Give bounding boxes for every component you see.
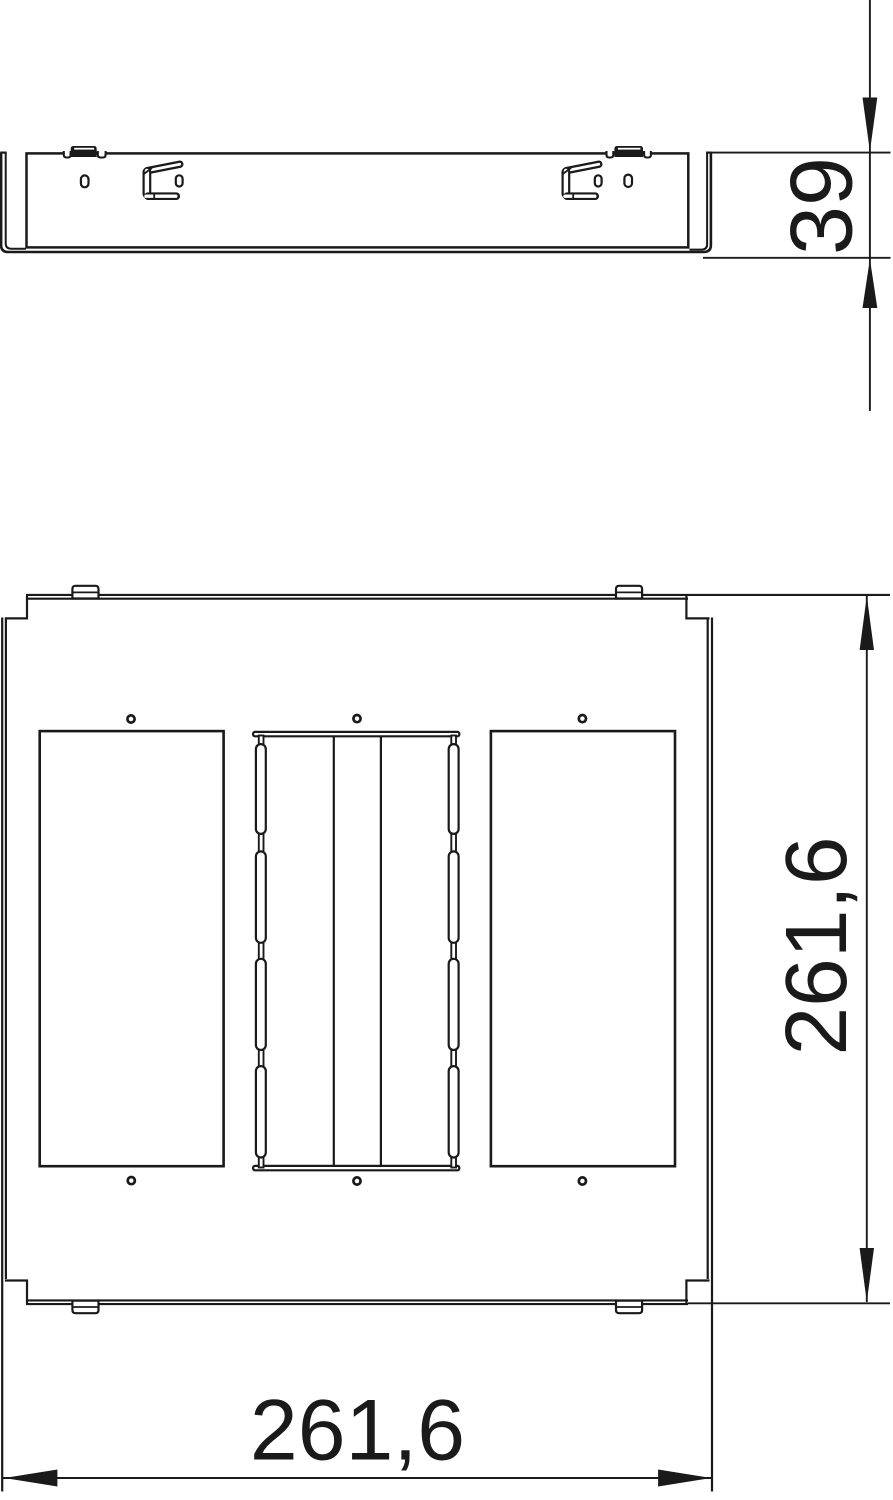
svg-text:39: 39	[772, 157, 871, 255]
svg-text:261,6: 261,6	[250, 1383, 465, 1479]
svg-text:261,6: 261,6	[767, 837, 865, 1056]
